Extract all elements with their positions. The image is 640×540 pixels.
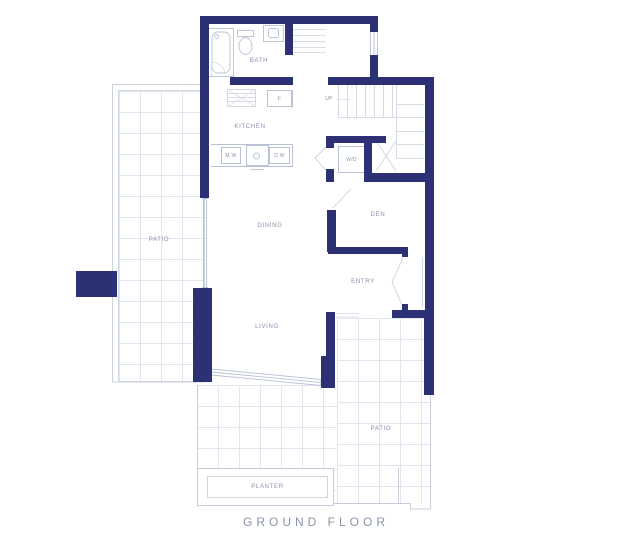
washer-dryer-box: W/D — [338, 146, 365, 173]
dishwasher-box: D.W — [269, 147, 290, 164]
living-label: LIVING — [255, 324, 279, 330]
wall-den-bottom — [328, 247, 408, 254]
wall-living-east-lower — [321, 356, 335, 388]
entry-step-lines — [336, 314, 359, 318]
patio-lower-label: PATIO — [371, 426, 392, 432]
pantry-shelves — [228, 90, 256, 107]
wall-laundry-top — [326, 136, 386, 143]
linework-layer — [0, 0, 640, 540]
entry-label: ENTRY — [351, 279, 375, 285]
page-title: GROUND FLOOR — [243, 515, 389, 529]
door-jamb-entry — [402, 304, 408, 311]
door-jamb-den — [402, 247, 408, 257]
understair-closet-doors — [376, 141, 396, 171]
wall-laundry-nub-top — [326, 136, 334, 148]
wall-living-east-upper — [326, 312, 335, 358]
wall-right-lower — [424, 318, 434, 395]
den-label: DEN — [371, 212, 386, 218]
linen-shelves — [293, 30, 326, 53]
wall-window-jamb-top — [370, 24, 378, 32]
living-sliding-door — [211, 369, 321, 386]
fridge-box: F — [267, 90, 292, 107]
wall-living-west — [193, 288, 212, 382]
wall-laundry-nub-bottom — [326, 169, 334, 182]
stove-box — [246, 145, 269, 166]
wall-bath-divider — [285, 16, 293, 55]
bathtub-icon — [209, 29, 234, 77]
bath-door-swing — [212, 62, 226, 76]
washer-closet-bifold-doors — [315, 147, 326, 170]
wall-entry-bottom — [392, 310, 434, 318]
wall-left-upper — [200, 16, 209, 198]
entry-closet-doors — [392, 257, 423, 307]
wall-stairs-top — [328, 77, 434, 85]
patio-sliding-door — [202, 198, 208, 288]
sink-icon — [264, 26, 284, 42]
microwave-label: M.W — [225, 153, 236, 159]
fridge-label: F — [278, 96, 281, 102]
floor-plan: F M.W D.W W/D PLANTER BATH KITCHEN UP DE… — [0, 0, 640, 540]
patio-upper-label: PATIO — [149, 237, 170, 243]
wall-laundry-bottom — [364, 173, 434, 182]
patio-pier — [76, 271, 117, 297]
wall-laundry-divider — [364, 136, 372, 176]
dining-label: DINING — [257, 223, 282, 229]
microwave-box: M.W — [221, 147, 241, 164]
wall-den-left — [327, 210, 336, 252]
toilet-icon — [238, 31, 254, 55]
dishwasher-label: D.W — [274, 153, 285, 159]
wall-bath-bottom — [230, 77, 293, 85]
stairs-up-label: UP — [325, 96, 333, 102]
planter-label: PLANTER — [251, 484, 284, 490]
planter-box: PLANTER — [197, 468, 334, 506]
window-top-right — [371, 32, 378, 56]
den-door-swing — [333, 189, 351, 208]
kitchen-label: KITCHEN — [234, 124, 265, 130]
wall-right — [425, 77, 434, 318]
washer-dryer-label: W/D — [346, 157, 357, 163]
bath-label: BATH — [250, 58, 268, 64]
planter-inner-box: PLANTER — [207, 476, 328, 498]
